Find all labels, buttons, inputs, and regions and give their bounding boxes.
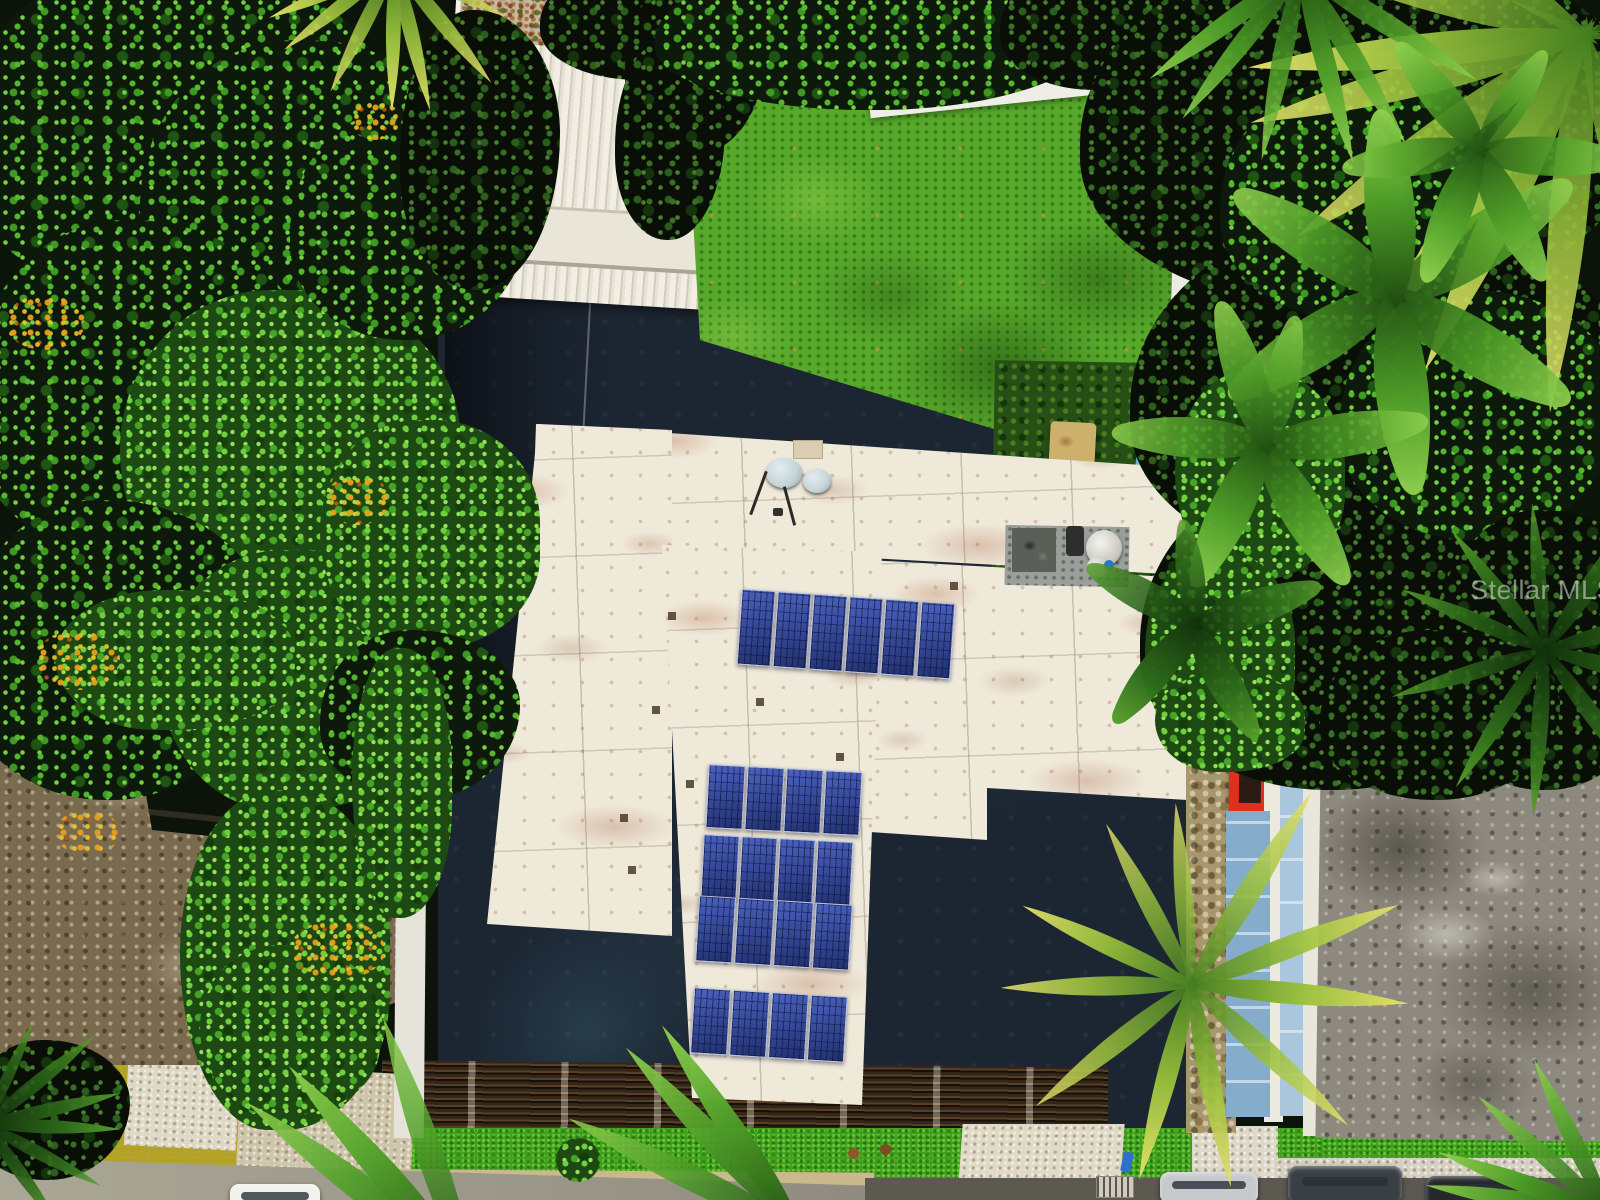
aerial-photo: Stellar MLS: [0, 0, 1600, 1200]
neighbor-gray-roof: [1315, 764, 1600, 1142]
flower-patch: [325, 475, 390, 525]
solar-panel: [738, 836, 777, 902]
solar-panel: [807, 995, 848, 1063]
solar-panel: [744, 766, 784, 832]
car-windshield: [1302, 1177, 1389, 1186]
solar-panel: [812, 903, 853, 971]
parked-car-silver: [1160, 1172, 1258, 1200]
solar-array: [700, 834, 853, 906]
roof-vent: [668, 612, 676, 620]
solar-panel: [822, 770, 862, 836]
rooftop-vent-box: [793, 440, 823, 459]
solar-panel: [695, 895, 736, 963]
solar-array: [705, 764, 862, 836]
dish-mount-base: [773, 508, 783, 516]
satellite-dish: [766, 458, 802, 488]
neighbor-blue-wall: [1226, 811, 1270, 1117]
roof-vent: [950, 582, 958, 590]
solar-panel: [705, 764, 745, 830]
car-windshield: [1440, 1184, 1527, 1191]
hedge: [1175, 370, 1345, 580]
small-shrub: [556, 1138, 600, 1182]
solar-panel: [776, 838, 815, 904]
solar-panel: [773, 900, 814, 968]
tree-over-wall: [352, 648, 452, 918]
roof-vent: [836, 753, 844, 761]
roof-vent: [686, 780, 694, 788]
solar-panel: [783, 768, 823, 834]
dark-cylinder: [1066, 526, 1084, 556]
roof-vent: [628, 866, 636, 874]
flower-patch: [350, 100, 400, 140]
flower-patch: [35, 630, 120, 690]
solar-array: [695, 895, 853, 970]
solar-array: [690, 987, 848, 1062]
equipment-box: [1012, 528, 1056, 572]
solar-panel: [768, 992, 809, 1060]
solar-array: [737, 589, 956, 680]
parked-car-dark: [1288, 1166, 1402, 1200]
solar-panel: [737, 589, 776, 667]
solar-panel: [880, 599, 919, 677]
parked-car-black: [1426, 1176, 1540, 1200]
flower-patch: [5, 295, 85, 350]
solar-panel: [734, 898, 775, 966]
coconut: [880, 1144, 891, 1155]
solar-panel: [916, 601, 955, 679]
car-windshield: [241, 1192, 309, 1199]
hedge: [1155, 672, 1305, 772]
watermark: Stellar MLS: [1470, 575, 1600, 606]
solar-panel: [690, 987, 731, 1055]
roof-vent: [756, 698, 764, 706]
tree-canopy: [1340, 290, 1600, 540]
roof-vent: [652, 706, 660, 714]
flower-patch: [290, 920, 385, 980]
car-windshield: [1172, 1181, 1247, 1189]
solar-panel: [808, 594, 847, 672]
flower-patch: [55, 810, 120, 855]
coconut: [848, 1148, 859, 1159]
satellite-dish: [803, 469, 831, 493]
solar-panel: [844, 596, 883, 674]
storm-drain-grate: [1096, 1176, 1134, 1198]
solar-panel: [700, 834, 739, 900]
parked-car-white: [230, 1184, 320, 1200]
tree-canopy: [320, 420, 540, 650]
solar-panel: [729, 990, 770, 1058]
roof-vent: [620, 814, 628, 822]
solar-panel: [814, 840, 853, 906]
solar-panel: [773, 591, 812, 669]
blue-cap: [1104, 560, 1114, 570]
